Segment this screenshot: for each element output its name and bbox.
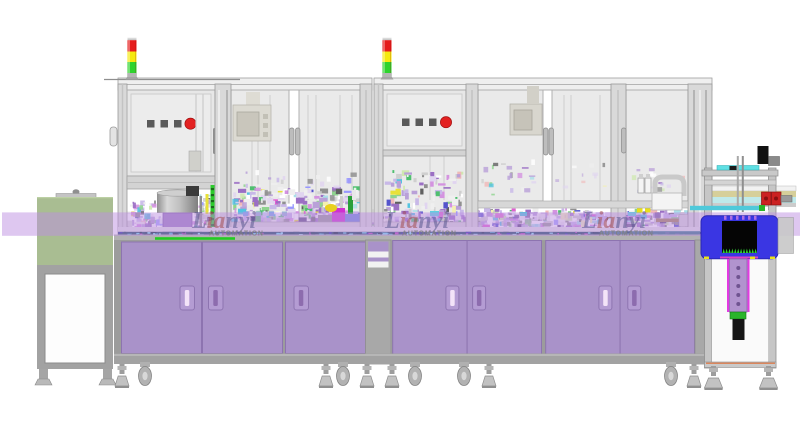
svg-text:AUTOMATION: AUTOMATION — [599, 231, 654, 238]
svg-text:AUTOMATION: AUTOMATION — [209, 231, 264, 238]
svg-text:AUTOMATION: AUTOMATION — [402, 231, 457, 238]
